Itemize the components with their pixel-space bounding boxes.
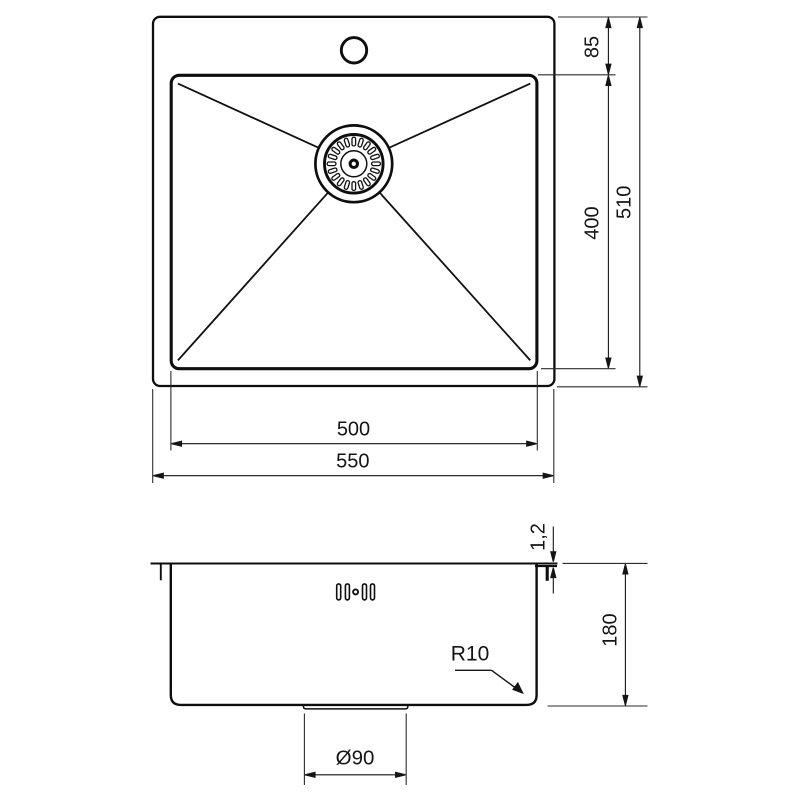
svg-text:Ø90: Ø90 [336, 747, 375, 770]
svg-text:1,2: 1,2 [527, 523, 549, 551]
svg-text:R10: R10 [451, 642, 490, 665]
svg-text:85: 85 [582, 36, 604, 58]
svg-text:550: 550 [336, 450, 369, 472]
svg-text:400: 400 [582, 206, 604, 239]
svg-text:510: 510 [614, 186, 636, 219]
svg-text:180: 180 [600, 613, 622, 646]
svg-text:500: 500 [337, 418, 370, 440]
